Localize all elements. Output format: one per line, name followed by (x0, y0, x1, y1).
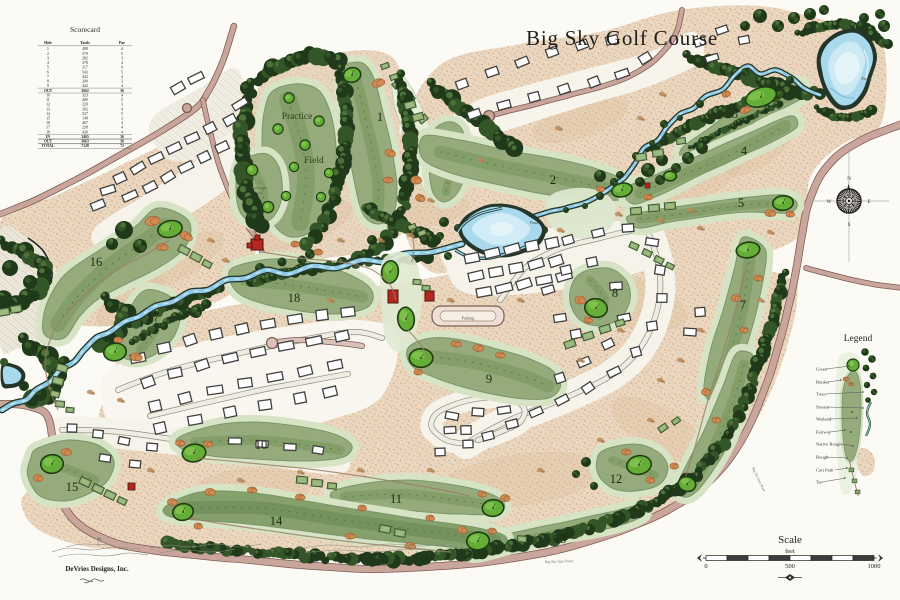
svg-text:2: 2 (47, 52, 49, 56)
svg-text:Native Rough: Native Rough (816, 442, 842, 447)
svg-text:148: 148 (82, 117, 88, 121)
svg-text:12: 12 (46, 103, 50, 107)
svg-text:14: 14 (270, 514, 283, 528)
svg-text:36: 36 (120, 140, 124, 144)
svg-text:400: 400 (82, 98, 88, 102)
svg-text:72: 72 (120, 144, 124, 148)
svg-text:7: 7 (47, 75, 49, 79)
svg-text:17: 17 (46, 126, 50, 130)
svg-text:488: 488 (82, 47, 88, 51)
svg-text:392: 392 (82, 107, 88, 111)
svg-text:0: 0 (704, 563, 707, 570)
svg-text:5: 5 (121, 70, 123, 74)
svg-text:feet: feet (785, 548, 795, 555)
svg-text:12: 12 (610, 472, 623, 486)
svg-text:14: 14 (46, 112, 50, 116)
svg-text:4: 4 (741, 144, 748, 158)
svg-text:Scorecard: Scorecard (70, 25, 100, 34)
svg-text:4: 4 (121, 84, 123, 88)
svg-text:3: 3 (732, 107, 738, 121)
svg-text:527: 527 (82, 112, 88, 116)
svg-text:200: 200 (82, 80, 88, 84)
svg-text:500: 500 (785, 563, 795, 570)
svg-text:3: 3 (121, 103, 123, 107)
svg-text:36: 36 (120, 89, 124, 93)
svg-text:W: W (827, 200, 832, 205)
svg-text:18: 18 (46, 130, 50, 134)
svg-text:1: 1 (47, 47, 49, 51)
svg-text:36: 36 (120, 135, 124, 139)
svg-text:E: E (867, 200, 870, 205)
svg-text:13: 13 (46, 107, 50, 111)
svg-text:Field: Field (304, 156, 324, 166)
svg-text:16: 16 (46, 121, 50, 125)
svg-text:7128: 7128 (81, 144, 89, 148)
svg-text:Par: Par (119, 41, 125, 45)
svg-text:442: 442 (82, 84, 88, 88)
svg-text:2: 2 (550, 173, 556, 187)
svg-text:1: 1 (377, 110, 383, 124)
svg-text:Legend: Legend (844, 334, 873, 344)
svg-text:3663: 3663 (81, 140, 89, 144)
svg-text:Parking: Parking (462, 316, 474, 321)
svg-text:Pond: Pond (861, 76, 871, 81)
svg-text:1000: 1000 (868, 563, 881, 570)
svg-text:3: 3 (121, 56, 123, 60)
svg-text:17: 17 (147, 310, 160, 324)
svg-text:OUT: OUT (44, 89, 53, 93)
svg-text:Stream: Stream (816, 405, 829, 410)
svg-text:4: 4 (121, 107, 123, 111)
svg-text:282: 282 (82, 56, 88, 60)
svg-text:Tee: Tee (816, 480, 823, 485)
svg-text:Short Game: Short Game (251, 186, 268, 190)
svg-text:3: 3 (121, 117, 123, 121)
svg-text:TOTAL: TOTAL (42, 144, 55, 148)
svg-text:3: 3 (121, 80, 123, 84)
svg-text:OUT: OUT (44, 140, 53, 144)
svg-text:S: S (848, 223, 851, 228)
svg-text:Hole: Hole (44, 41, 52, 45)
svg-text:Area: Area (256, 191, 263, 195)
svg-text:3: 3 (47, 56, 49, 60)
svg-text:5: 5 (121, 112, 123, 116)
svg-text:Cart Path: Cart Path (816, 468, 834, 473)
svg-text:543: 543 (82, 70, 88, 74)
svg-text:Yards: Yards (80, 41, 90, 45)
svg-text:4: 4 (121, 61, 123, 65)
svg-text:DeVries Designs, Inc.: DeVries Designs, Inc. (65, 565, 129, 573)
svg-text:4: 4 (47, 61, 49, 65)
svg-text:Bunker: Bunker (816, 380, 830, 385)
svg-text:15: 15 (66, 480, 79, 494)
svg-text:Practice: Practice (282, 112, 313, 122)
svg-text:238: 238 (82, 126, 88, 130)
svg-text:Scale: Scale (778, 534, 802, 546)
svg-text:323: 323 (82, 93, 88, 97)
svg-text:4: 4 (121, 47, 123, 51)
svg-text:9: 9 (486, 372, 492, 386)
svg-text:317: 317 (82, 66, 88, 70)
svg-text:5: 5 (121, 98, 123, 102)
svg-text:4: 4 (121, 126, 123, 130)
svg-text:Wetland: Wetland (816, 417, 832, 422)
svg-text:10: 10 (255, 438, 268, 452)
svg-text:4: 4 (121, 93, 123, 97)
svg-text:Trees: Trees (816, 392, 826, 397)
svg-text:220: 220 (82, 103, 88, 107)
svg-text:IN: IN (46, 135, 50, 139)
svg-text:5: 5 (47, 66, 49, 70)
svg-text:8: 8 (47, 80, 49, 84)
svg-text:Fairway: Fairway (816, 430, 832, 435)
svg-text:11: 11 (46, 98, 50, 102)
svg-text:Pond: Pond (530, 220, 538, 225)
svg-text:3662: 3662 (81, 89, 89, 93)
svg-text:11: 11 (390, 492, 402, 506)
svg-text:378: 378 (82, 61, 88, 65)
svg-text:10: 10 (46, 93, 50, 97)
svg-text:6: 6 (47, 70, 49, 74)
svg-text:4: 4 (121, 75, 123, 79)
svg-text:4: 4 (121, 130, 123, 134)
svg-text:4: 4 (121, 66, 123, 70)
svg-text:6: 6 (724, 427, 730, 441)
svg-text:4: 4 (121, 121, 123, 125)
svg-text:13: 13 (554, 532, 567, 546)
svg-text:430: 430 (82, 130, 88, 134)
svg-text:18: 18 (288, 291, 301, 305)
svg-text:467: 467 (82, 121, 88, 125)
svg-text:5: 5 (121, 52, 123, 56)
svg-text:7: 7 (740, 298, 746, 312)
svg-text:442: 442 (82, 75, 88, 79)
svg-text:N: N (847, 177, 851, 182)
svg-text:3465: 3465 (81, 135, 89, 139)
svg-text:Big Sky Golf Course: Big Sky Golf Course (526, 26, 718, 50)
svg-text:15: 15 (46, 117, 50, 121)
svg-text:5: 5 (738, 196, 744, 210)
svg-text:570: 570 (82, 52, 88, 56)
svg-text:16: 16 (90, 255, 103, 269)
svg-text:8: 8 (612, 286, 618, 300)
svg-text:9: 9 (47, 84, 49, 88)
